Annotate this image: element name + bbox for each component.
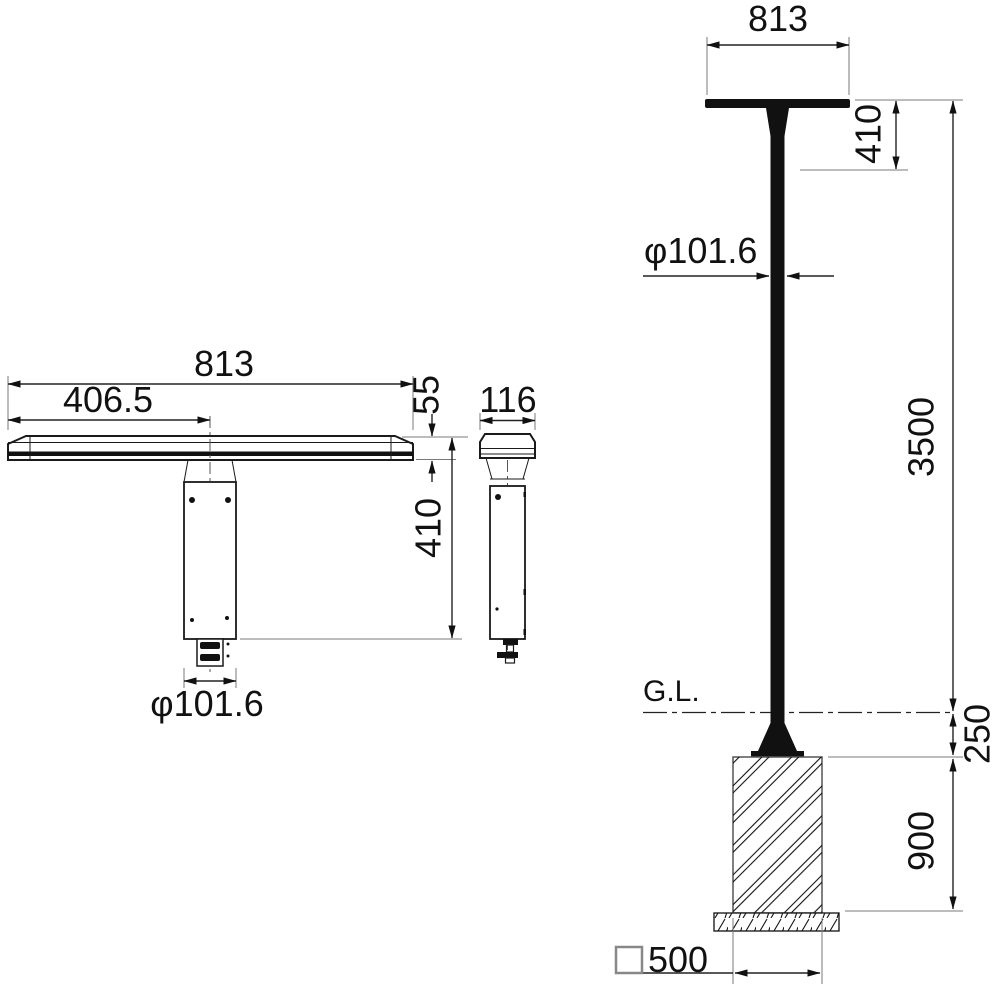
dim-elevation-pole-height: 3500	[901, 101, 953, 711]
crossbar-side	[480, 434, 535, 458]
screw-dot	[495, 494, 501, 500]
dim-label-elevation-foundation-depth: 900	[901, 811, 942, 871]
dim-front-pole-diameter: φ101.6	[150, 668, 263, 724]
front-view: 813 406.5 55 410 φ101.6	[8, 343, 468, 724]
ground-line-label: G.L.	[643, 675, 700, 708]
technical-drawing: 813 406.5 55 410 φ101.6	[0, 0, 1000, 1000]
dim-label-front-width: 813	[194, 343, 254, 384]
screw-dot	[189, 497, 195, 503]
screw-dot	[225, 497, 231, 503]
dim-label-elevation-head-width: 813	[748, 0, 808, 39]
lamp-body-side	[486, 458, 529, 663]
dim-elevation-head-width: 813	[707, 0, 849, 95]
dim-label-front-head-height: 410	[408, 498, 449, 558]
pole-socket-front	[197, 639, 230, 666]
side-tab	[524, 492, 527, 497]
side-tab	[524, 589, 527, 595]
drawing-sheet: 813 406.5 55 410 φ101.6	[0, 0, 1000, 1000]
dim-label-side-depth: 116	[479, 379, 536, 420]
pole	[758, 108, 797, 751]
square-section-symbol	[616, 947, 642, 973]
screw-dot	[495, 607, 498, 610]
dim-elevation-pole-diameter: φ101.6	[643, 230, 834, 276]
dim-label-front-pole-diameter: φ101.6	[150, 683, 263, 724]
dim-front-bar-height: 55	[402, 375, 468, 482]
dim-label-elevation-head-height: 410	[848, 104, 889, 164]
dim-elevation-base-height: 250	[953, 704, 998, 764]
dim-front-head-height: 410	[240, 438, 462, 639]
dim-label-front-bar-height: 55	[406, 375, 447, 415]
dim-label-elevation-base-height: 250	[957, 704, 998, 764]
side-tab	[524, 629, 527, 635]
dim-side-depth: 116	[479, 379, 536, 430]
dim-label-front-half-width: 406.5	[63, 379, 153, 420]
dim-label-elevation-pole-height: 3500	[901, 397, 942, 477]
screw-dot	[190, 618, 194, 622]
dim-elevation-head-height: 410	[800, 101, 908, 170]
dim-front-half-width: 406.5	[8, 379, 210, 420]
screw-dot	[225, 616, 229, 620]
elevation-view: 813 G.L. φ101.6 410	[616, 0, 998, 984]
base-plate	[751, 751, 804, 757]
lamp-body-front	[184, 460, 236, 666]
pole-socket-side	[497, 639, 518, 663]
side-view: 116	[479, 379, 536, 663]
dim-label-elevation-foundation-width: 500	[648, 939, 708, 980]
dim-elevation-foundation-depth: 900	[845, 759, 963, 911]
foundation	[733, 757, 822, 913]
crossbar-elevation	[705, 99, 850, 108]
dim-label-elevation-pole-diameter: φ101.6	[644, 230, 757, 271]
